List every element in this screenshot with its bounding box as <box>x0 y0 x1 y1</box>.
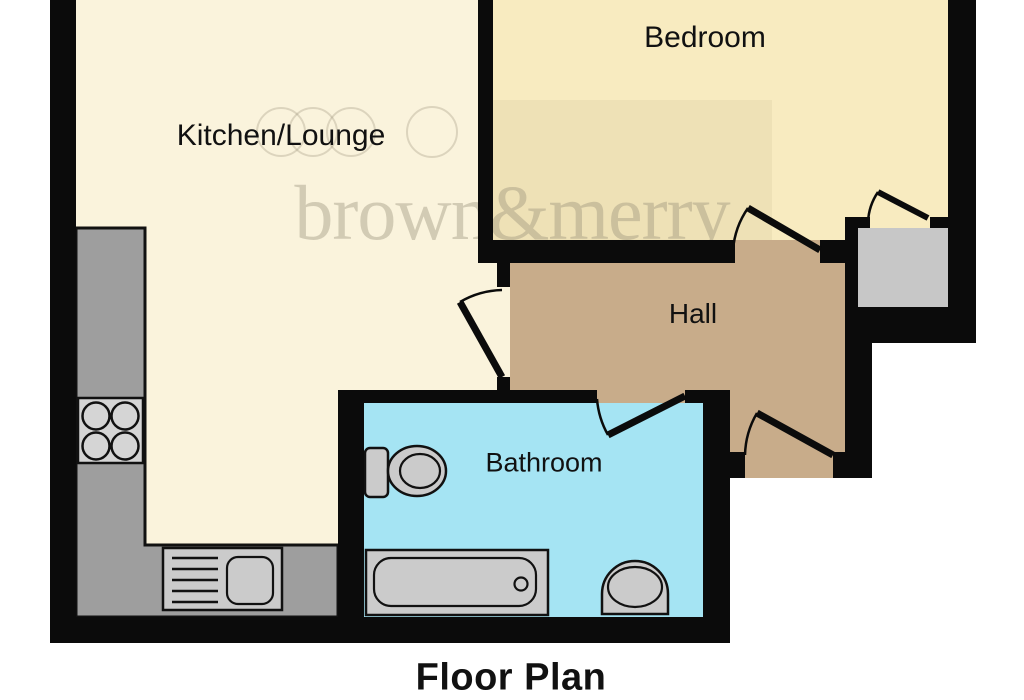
hall-label: Hall <box>669 298 717 330</box>
plan-title: Floor Plan <box>416 657 607 700</box>
bedroom-door <box>733 208 820 250</box>
floor-plan: brown&merry <box>0 0 1024 697</box>
kitchen-label: Kitchen/Lounge <box>177 119 386 153</box>
cupboard-door <box>868 192 928 222</box>
doors-layer <box>0 0 1024 697</box>
bathroom-door <box>597 396 685 435</box>
kitchen-door <box>460 290 502 377</box>
bedroom-label: Bedroom <box>644 21 766 55</box>
bathroom-label: Bathroom <box>485 448 602 479</box>
front-door <box>745 413 833 455</box>
